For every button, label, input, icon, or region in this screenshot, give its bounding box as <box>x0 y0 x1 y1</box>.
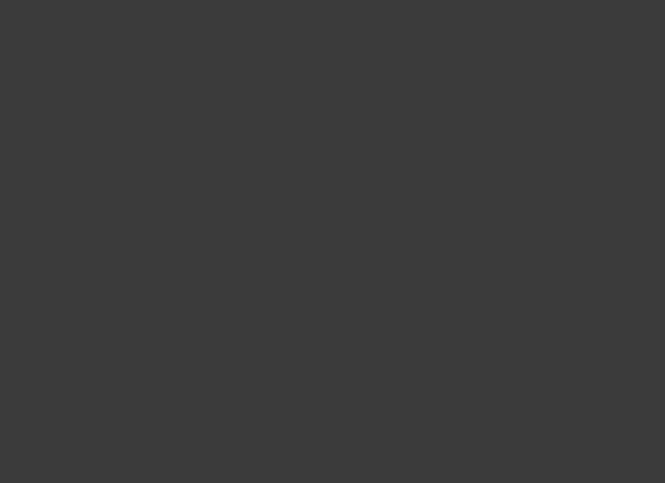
supermarket-floor-plan <box>0 0 665 483</box>
floor-plan-page <box>0 0 665 483</box>
